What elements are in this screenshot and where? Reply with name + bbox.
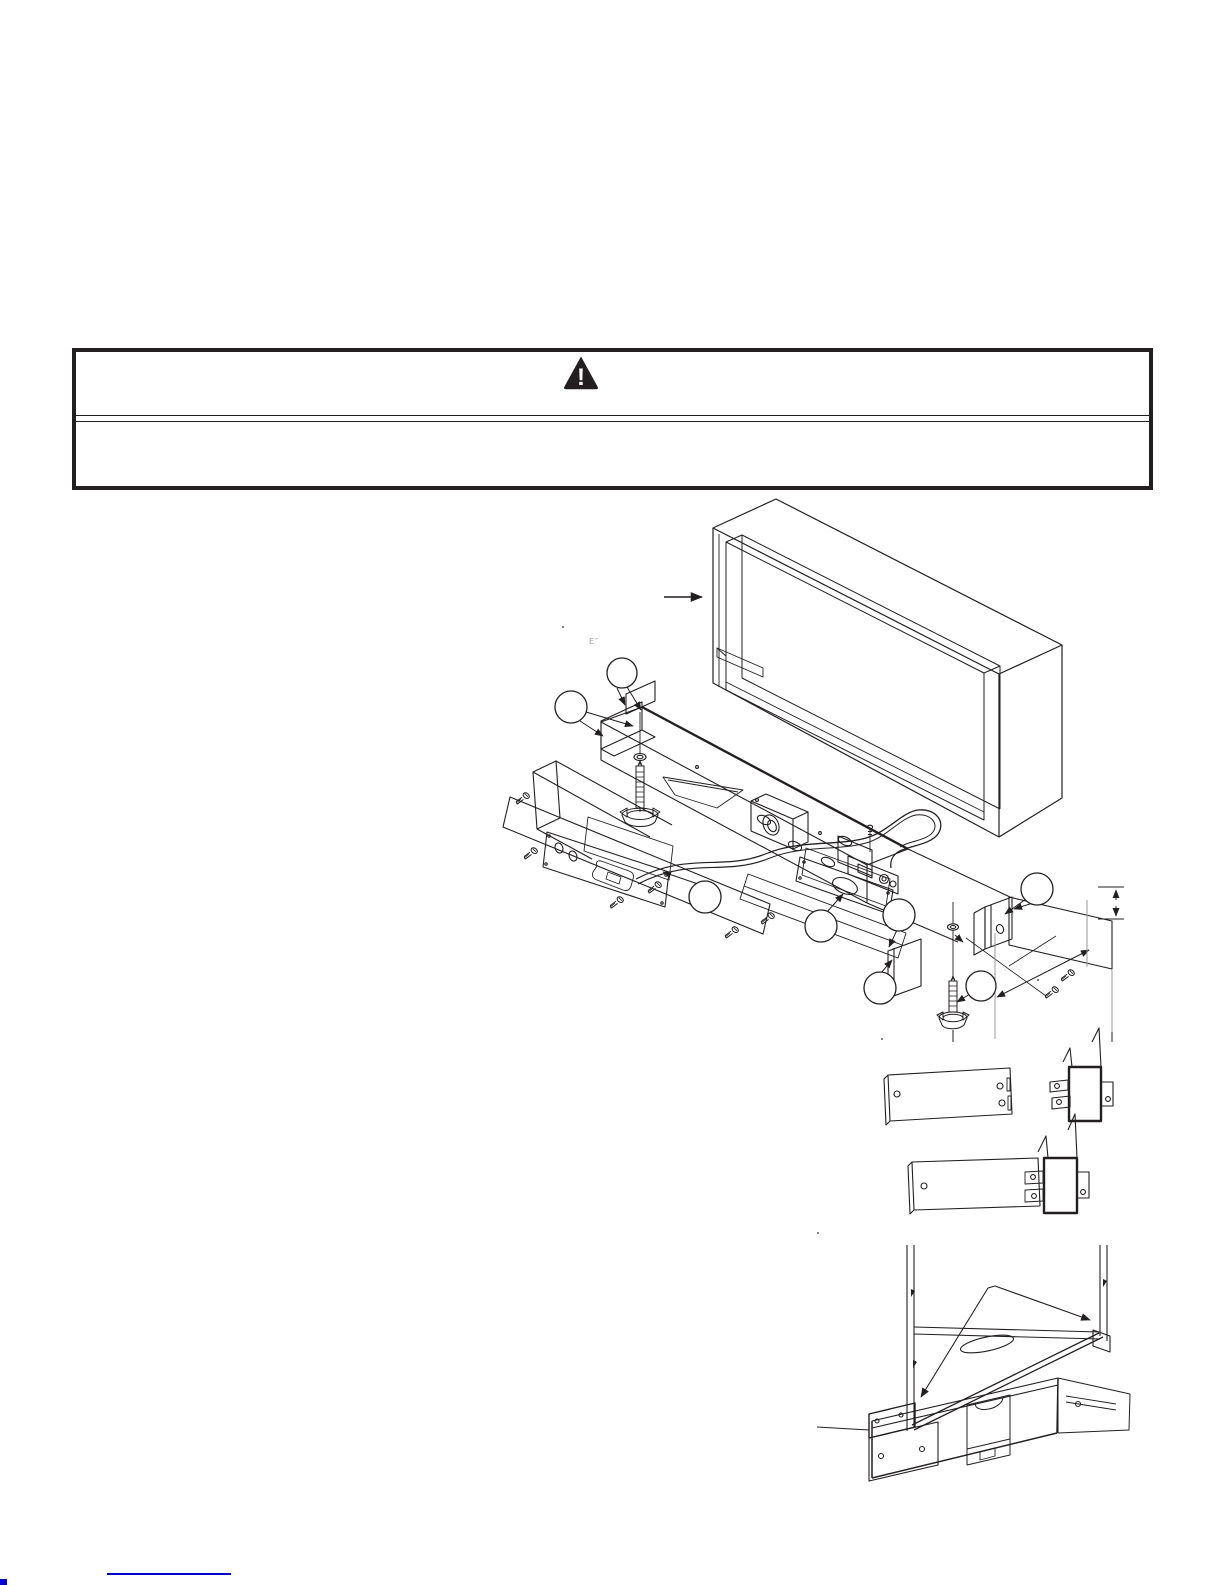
- callout-circle: [966, 971, 996, 1001]
- screw-icon: [761, 912, 775, 925]
- corner-bracket-top: [1050, 1028, 1113, 1121]
- callout-circle: [1021, 873, 1053, 905]
- scan-dot: [881, 1038, 883, 1040]
- manual-page: !: [0, 0, 1225, 1585]
- scan-dot: [817, 1232, 819, 1234]
- figures-canvas: [0, 0, 1225, 1585]
- screw-icon: [1061, 969, 1075, 982]
- figure-bracket-inset-bottom: [908, 1114, 1089, 1214]
- screw-icon: [1045, 986, 1059, 999]
- figure-corner-framing: [817, 1245, 1130, 1481]
- callout-circle: [689, 881, 721, 913]
- screw-icon: [524, 847, 538, 860]
- callout-circle: [805, 910, 837, 942]
- screws: [516, 792, 1075, 999]
- figure-wall-shell: [664, 499, 1062, 837]
- leveling-bolt-left: [620, 761, 660, 827]
- scan-dot: [1037, 979, 1039, 981]
- faint-glyph-artifact: E″: [589, 637, 599, 646]
- hyperlink-underline[interactable]: [107, 1573, 231, 1575]
- scan-dots: [562, 626, 1039, 1234]
- figure-bracket-inset-top: [884, 1028, 1113, 1125]
- callout-circle: [883, 899, 915, 931]
- scan-dot: [562, 626, 564, 628]
- callout-circle: [555, 691, 587, 723]
- callout-circle: [607, 658, 637, 688]
- leveling-bolt-right: [937, 976, 969, 1029]
- callout-circle: [864, 972, 896, 1004]
- figure-exploded-base: [503, 681, 1124, 1042]
- screw-icon: [610, 896, 624, 909]
- page-corner-mark: [0, 1579, 7, 1585]
- screw-icon: [725, 926, 739, 939]
